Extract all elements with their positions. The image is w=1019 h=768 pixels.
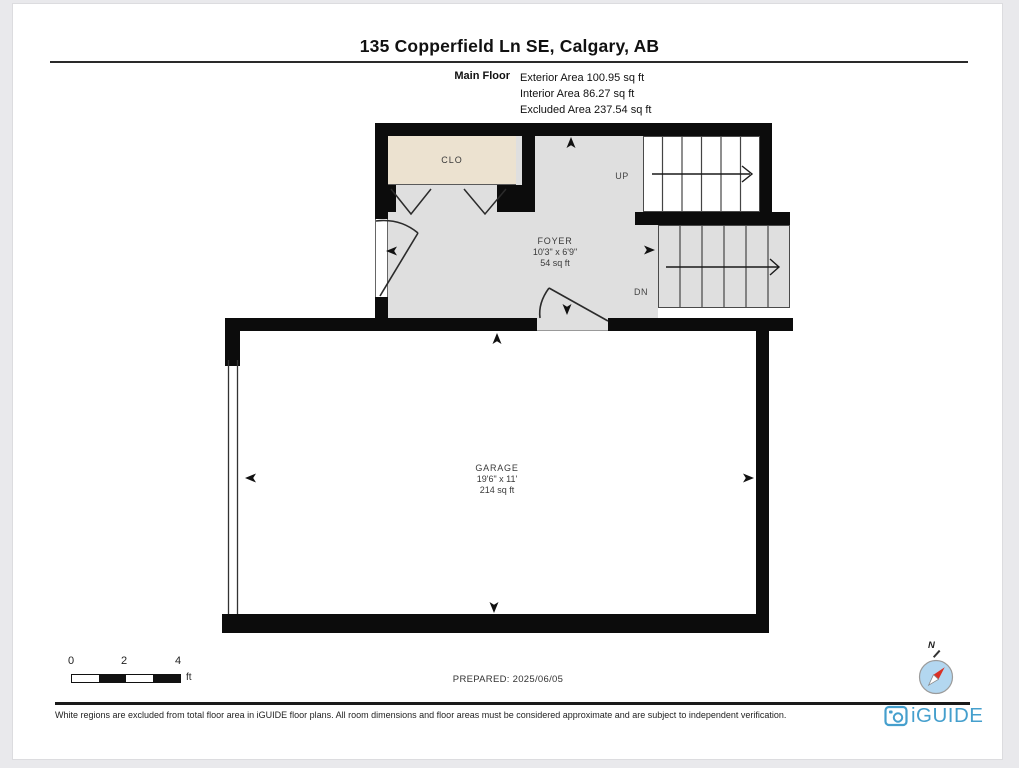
footer-divider <box>55 702 970 705</box>
iguide-wordmark: iGUIDE <box>911 704 983 728</box>
wall-garage-bottom <box>222 614 768 633</box>
exterior-area: Exterior Area 100.95 sq ft <box>520 70 651 86</box>
garage-name: GARAGE <box>475 463 518 474</box>
footer-disclaimer: White regions are excluded from total fl… <box>55 710 875 720</box>
foyer-name: FOYER <box>533 236 577 247</box>
page-title: 135 Copperfield Ln SE, Calgary, AB <box>0 36 1019 57</box>
scale-bar <box>71 674 181 683</box>
scale-tick-4: 4 <box>171 655 185 667</box>
prepared-date: PREPARED: 2025/06/05 <box>453 674 563 685</box>
garage-dimensions: 19'6" x 11' <box>475 474 518 485</box>
closet-label: CLO <box>441 155 463 165</box>
wall-garage-left-upper <box>225 318 240 366</box>
wall-foyer-left-upper <box>375 123 388 219</box>
wall-stairs-right <box>760 123 772 225</box>
iguide-camera-icon <box>884 705 908 727</box>
entry-door-opening <box>375 219 388 297</box>
scale-unit: ft <box>186 672 192 683</box>
garage-door-opening <box>537 318 608 331</box>
floor-name: Main Floor <box>420 70 510 82</box>
compass-north-label: N <box>928 640 935 651</box>
stairs-up <box>643 136 760 212</box>
excluded-area: Excluded Area 237.54 sq ft <box>520 102 651 118</box>
closet-room: CLO <box>388 136 516 185</box>
stairs-down <box>658 225 790 308</box>
scale-tick-0: 0 <box>64 655 78 667</box>
wall-stairs-middle <box>635 212 790 225</box>
title-divider <box>50 61 968 63</box>
wall-closet-right <box>522 136 535 212</box>
floor-area-summary: Exterior Area 100.95 sq ft Interior Area… <box>520 70 651 118</box>
stairs-down-label: DN <box>634 287 648 297</box>
wall-garage-top <box>225 318 537 331</box>
foyer-area: 54 sq ft <box>533 258 577 269</box>
iguide-logo: iGUIDE <box>884 704 983 728</box>
scale-segment <box>126 675 153 682</box>
scale-segment <box>99 675 126 682</box>
foyer-dimensions: 10'3" x 6'9" <box>533 247 577 258</box>
garage-area: 214 sq ft <box>475 485 518 496</box>
wall-closet-corner <box>497 185 522 212</box>
wall-top <box>375 123 772 136</box>
floor-plan-document: 135 Copperfield Ln SE, Calgary, AB Main … <box>0 0 1019 768</box>
scale-segment <box>153 675 180 682</box>
scale-tick-2: 2 <box>117 655 131 667</box>
interior-area: Interior Area 86.27 sq ft <box>520 86 651 102</box>
wall-closet-stub <box>388 185 396 212</box>
garage-label: GARAGE 19'6" x 11' 214 sq ft <box>475 463 518 496</box>
wall-garage-right <box>756 318 769 633</box>
stairs-up-label: UP <box>615 171 629 181</box>
foyer-label: FOYER 10'3" x 6'9" 54 sq ft <box>533 236 577 269</box>
scale-segment <box>72 675 99 682</box>
